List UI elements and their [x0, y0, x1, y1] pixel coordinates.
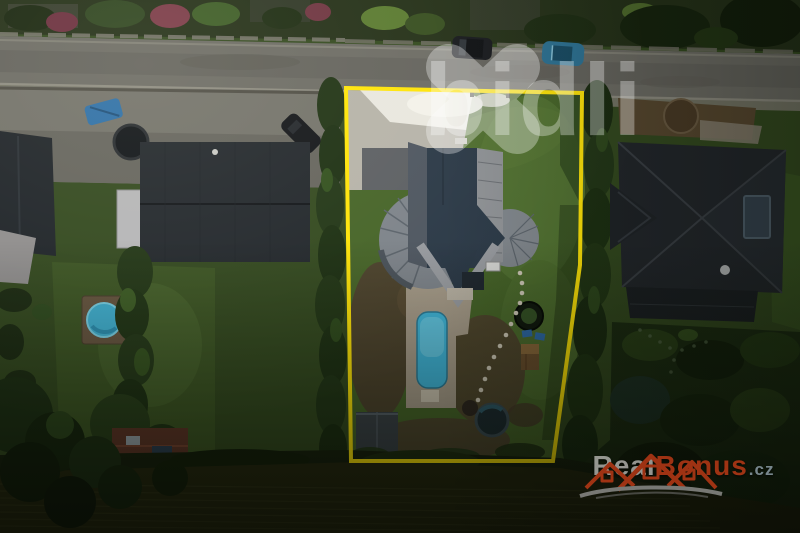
satellite-dish [720, 265, 730, 275]
red-shrub [305, 3, 331, 21]
red-shrub [150, 4, 190, 28]
realbonus-text-tld: .cz [749, 460, 775, 480]
aerial-photo: bidli RealBonus.cz [0, 0, 800, 533]
sunlit-terrace [0, 230, 36, 284]
bidli-logo-icon [424, 40, 542, 158]
chimney [212, 149, 218, 155]
realbonus-logo-icon [576, 452, 726, 500]
planting-circle [664, 99, 698, 133]
roof-hatch [486, 262, 500, 271]
right-house [610, 142, 786, 322]
pool-step-pad [421, 390, 439, 402]
soil-mound [462, 400, 478, 416]
skylight [744, 196, 770, 238]
red-shrub [46, 12, 78, 32]
blue-garden-chair [522, 329, 533, 337]
entry-porch [462, 272, 484, 290]
play-structure [521, 344, 539, 370]
entry-walkway [447, 288, 473, 300]
parking-pad [362, 148, 408, 190]
bidli-watermark: bidli [424, 40, 644, 160]
realbonus-watermark: RealBonus.cz [576, 452, 791, 482]
